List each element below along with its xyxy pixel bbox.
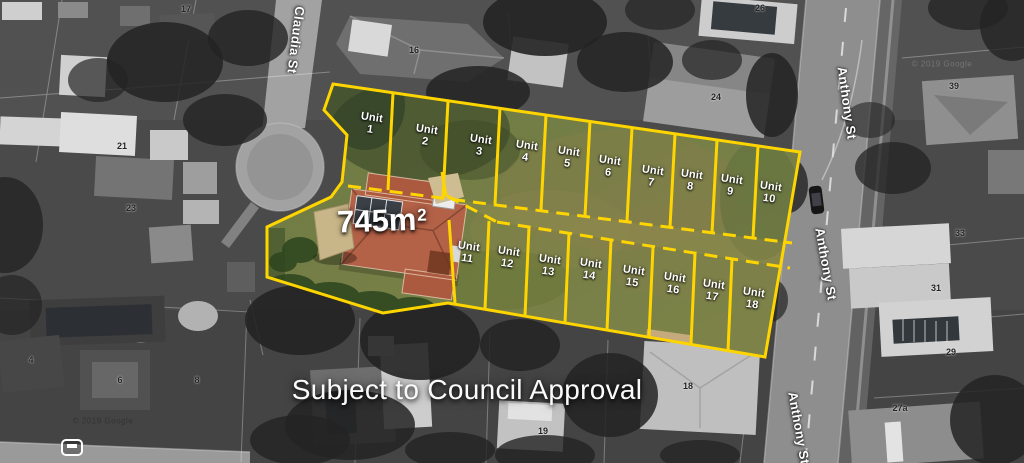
aerial-basemap: [0, 0, 1024, 463]
solar-panels: [711, 1, 777, 34]
bus-stop-icon: [62, 440, 82, 455]
solar-panels: [892, 316, 959, 343]
aerial-photo: 745m2 Subject to Council Approval Unit1U…: [0, 0, 1024, 463]
solar-panels: [46, 304, 153, 338]
swimming-pool: [178, 301, 218, 331]
